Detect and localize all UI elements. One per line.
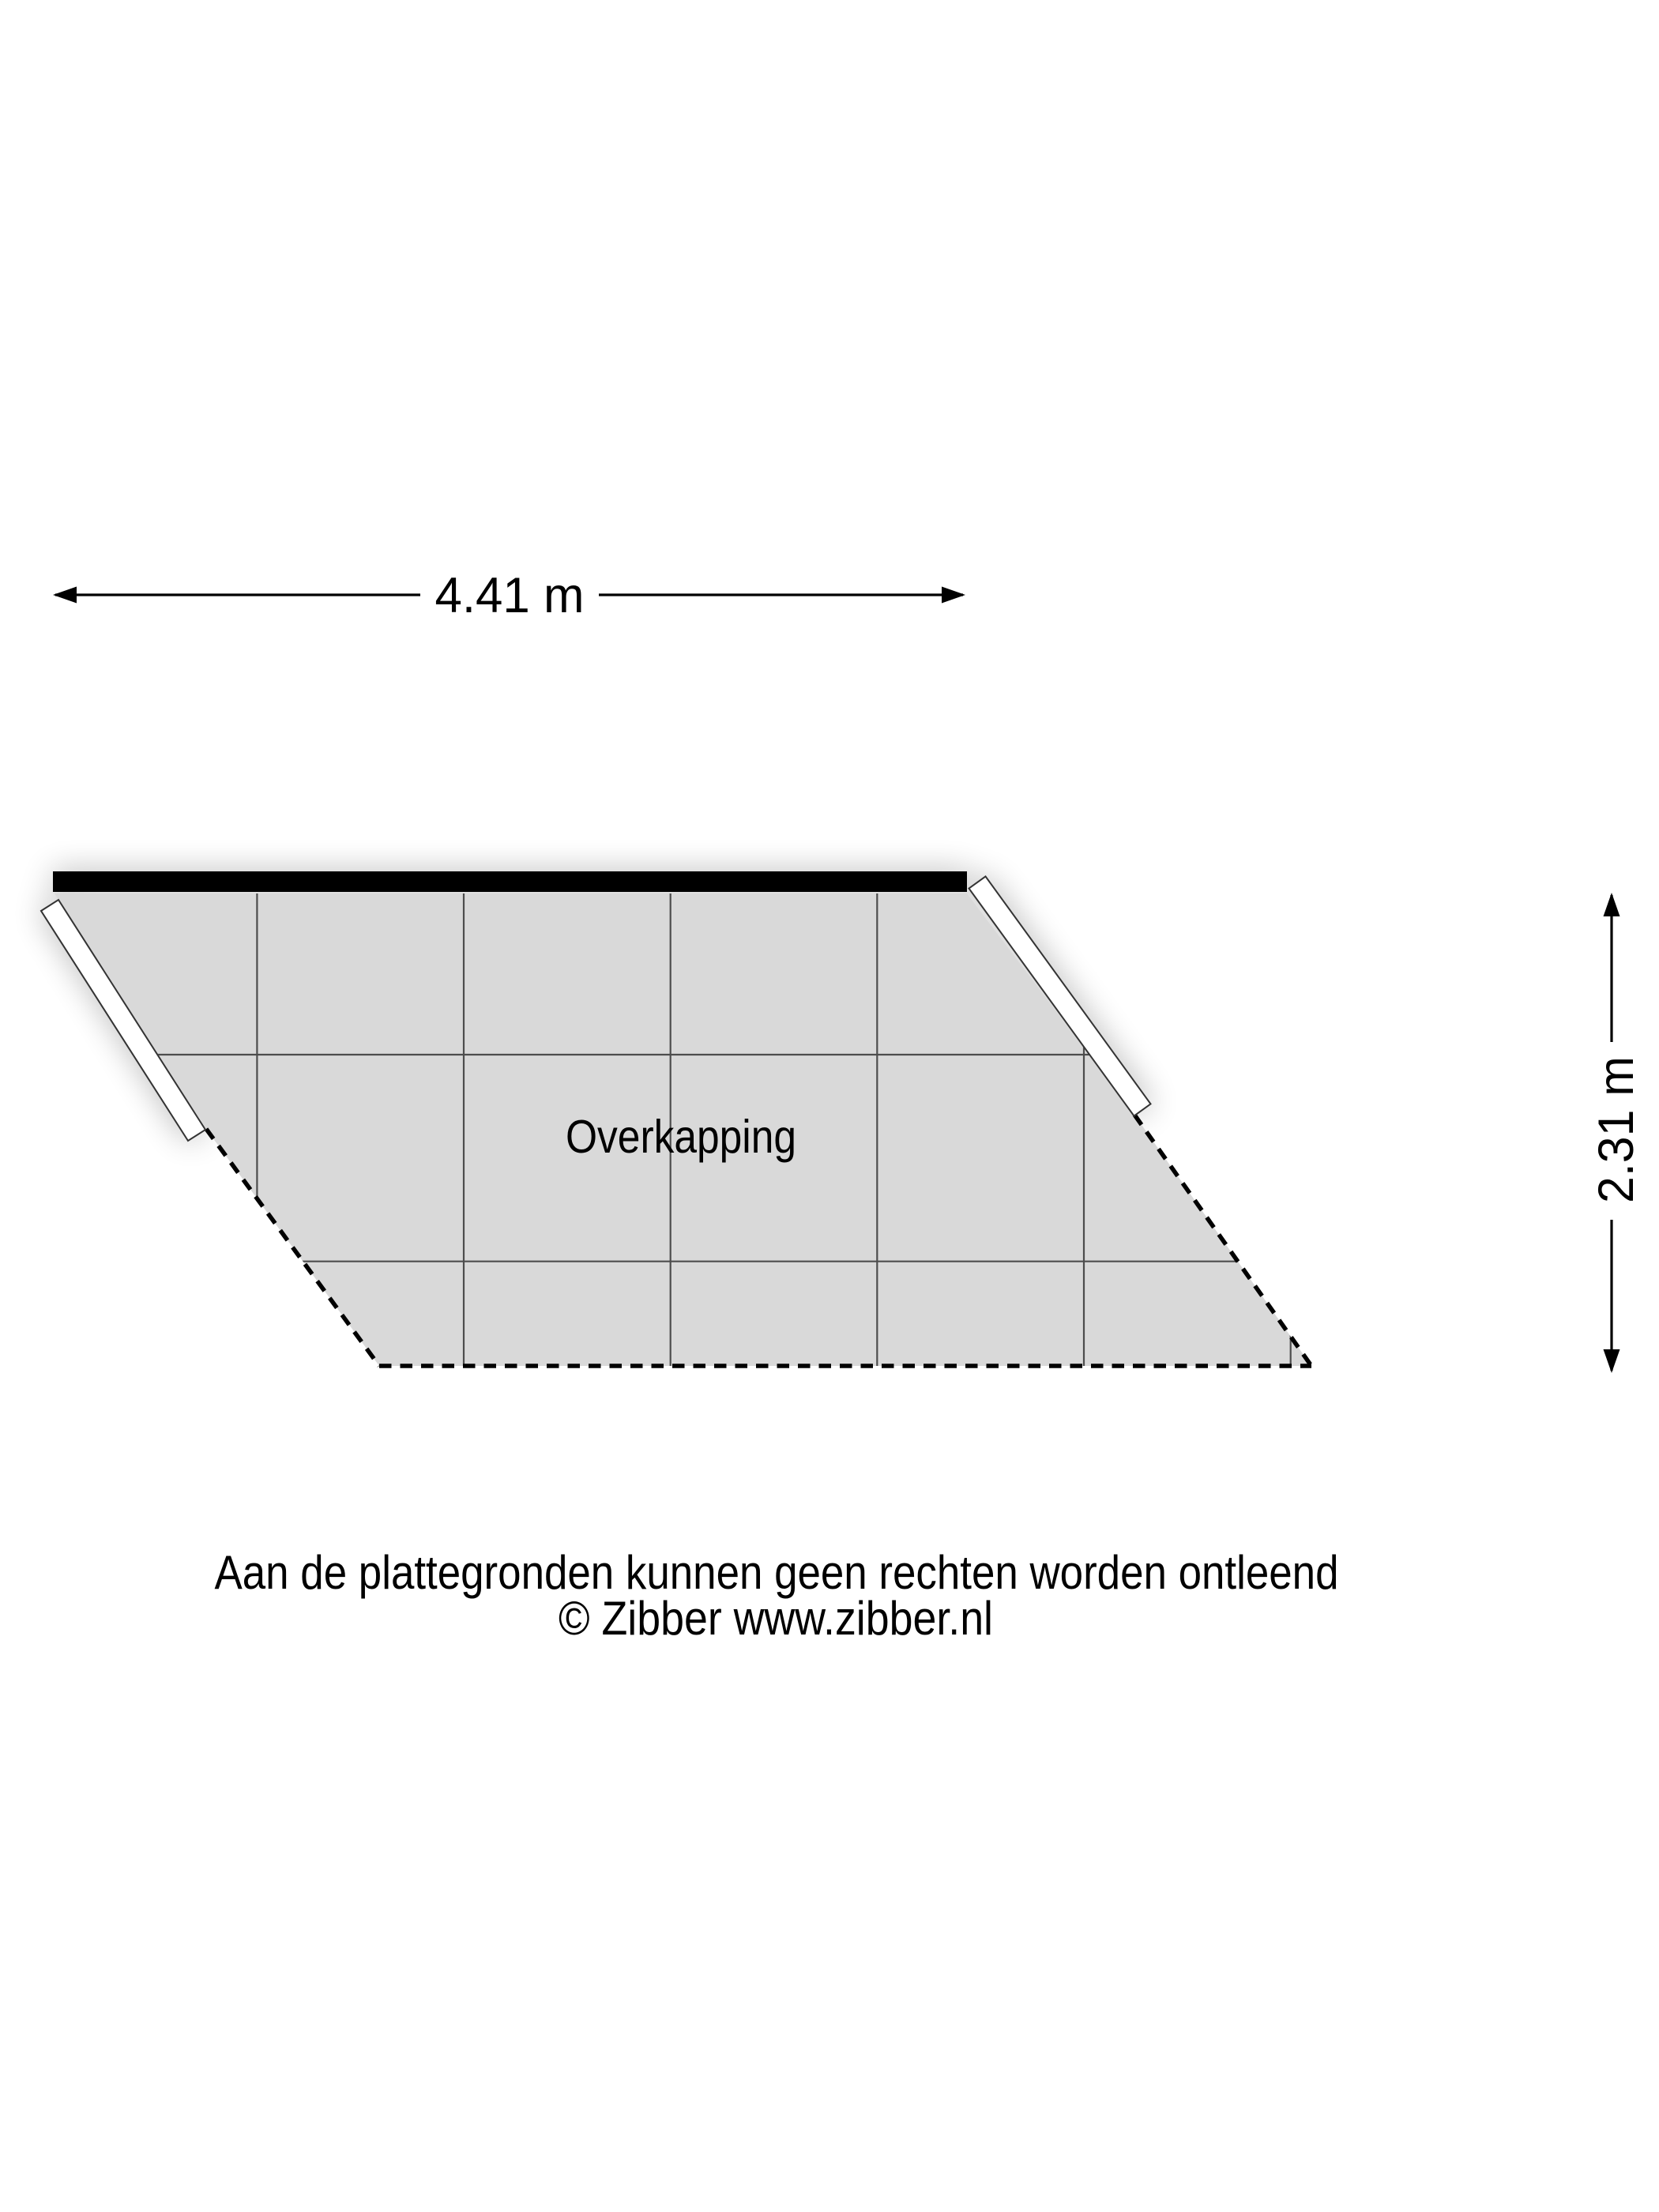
svg-text:4.41 m: 4.41 m xyxy=(435,568,585,623)
svg-text:Overkapping: Overkapping xyxy=(566,1111,796,1163)
svg-text:2.31 m: 2.31 m xyxy=(1589,1056,1644,1203)
svg-text:Aan de plattegronden kunnen ge: Aan de plattegronden kunnen geen rechten… xyxy=(215,1546,1339,1599)
svg-text:© Zibber www.zibber.nl: © Zibber www.zibber.nl xyxy=(559,1592,993,1645)
